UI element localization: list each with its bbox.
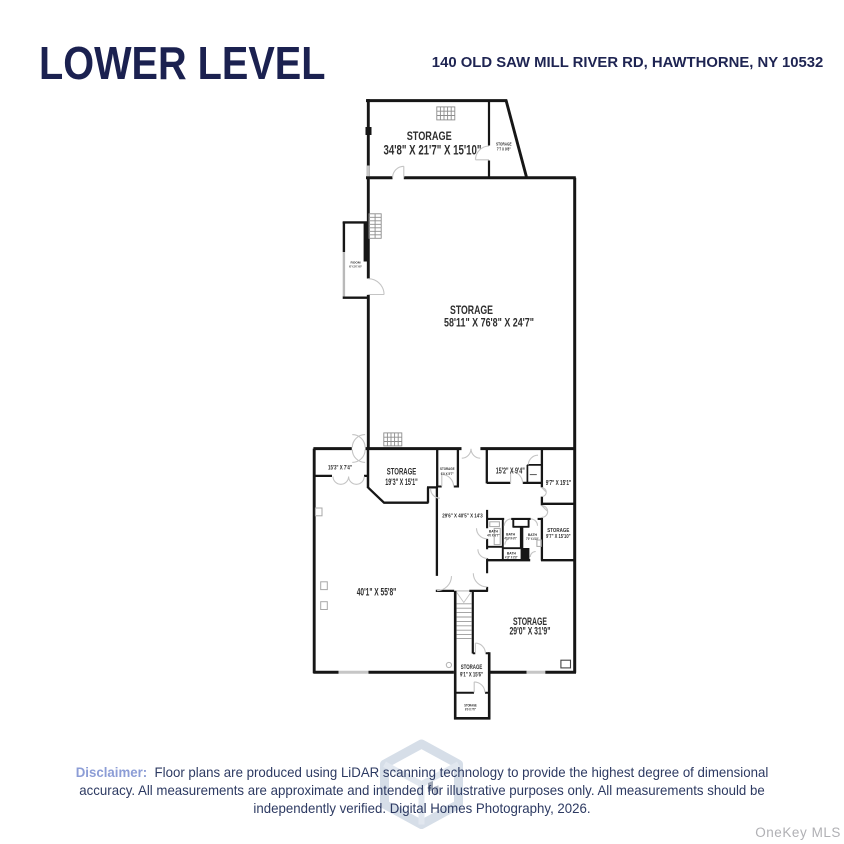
svg-text:29'6" X 40'5" X 14'3: 29'6" X 40'5" X 14'3 (442, 514, 483, 520)
svg-text:4'10" X 6'0": 4'10" X 6'0" (504, 536, 517, 540)
svg-text:9'7" X 15'10": 9'7" X 15'10" (546, 534, 571, 540)
svg-text:7'0" X 4'10": 7'0" X 4'10" (526, 537, 539, 541)
svg-text:STORAGE: STORAGE (461, 664, 483, 671)
svg-text:9'7" X 15'1": 9'7" X 15'1" (546, 480, 572, 487)
svg-text:6'0 X 5'7": 6'0 X 5'7" (441, 471, 454, 476)
svg-text:6'0 X 7'0": 6'0 X 7'0" (465, 707, 476, 711)
svg-text:STORAGE: STORAGE (450, 303, 493, 317)
svg-text:34'8" X 21'7" X 15'10": 34'8" X 21'7" X 15'10" (384, 142, 482, 157)
svg-text:15'2" X 9'4": 15'2" X 9'4" (496, 467, 525, 476)
svg-text:STORAGE: STORAGE (407, 130, 452, 143)
svg-text:9'1" X 15'6": 9'1" X 15'6" (460, 671, 483, 678)
svg-text:4'0 X 6'7": 4'0 X 6'7" (487, 534, 500, 538)
svg-text:15'3" X 7'4": 15'3" X 7'4" (328, 465, 352, 471)
svg-text:29'0" X 31'9": 29'0" X 31'9" (510, 625, 551, 637)
svg-text:6'2" X 23'0" X 8'0": 6'2" X 23'0" X 8'0" (349, 265, 362, 269)
svg-text:4'10" X 3'10": 4'10" X 3'10" (505, 556, 518, 560)
svg-text:7'7 X 9'8": 7'7 X 9'8" (497, 147, 511, 152)
svg-text:STORAGE: STORAGE (547, 528, 569, 534)
svg-text:58'11" X 76'8" X 24'7": 58'11" X 76'8" X 24'7" (444, 317, 534, 330)
svg-text:40'1" X 55'8": 40'1" X 55'8" (357, 586, 397, 598)
svg-text:STORAGE: STORAGE (387, 466, 417, 476)
svg-text:19'3" X 15'1": 19'3" X 15'1" (385, 477, 418, 487)
